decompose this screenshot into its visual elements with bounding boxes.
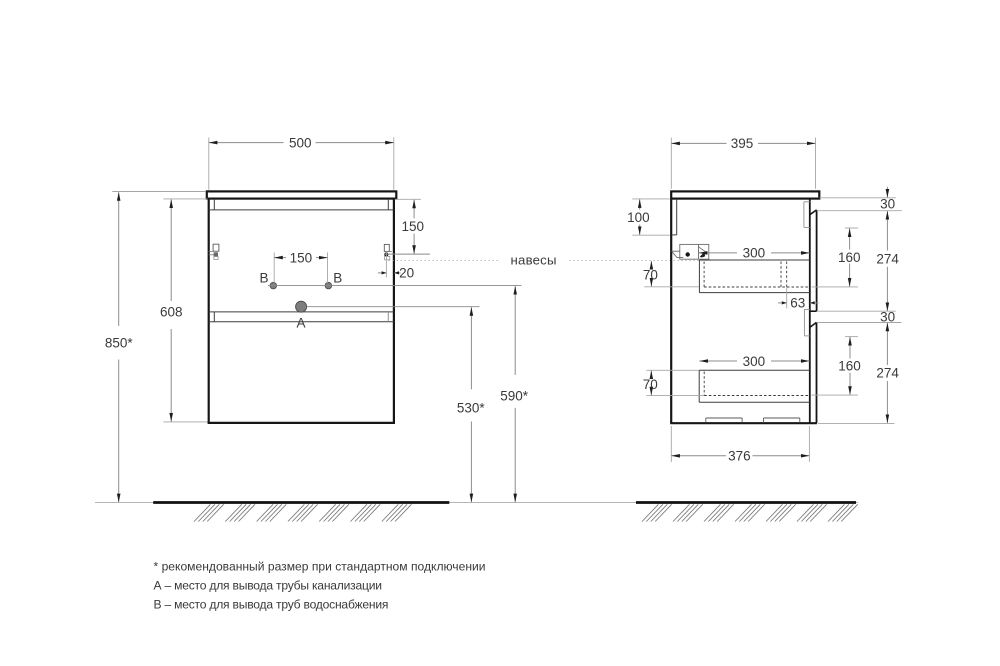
svg-text:160: 160 (838, 359, 861, 374)
svg-text:В – место для вывода труб водо: В – место для вывода труб водоснабжения (154, 597, 389, 611)
svg-text:530*: 530* (457, 400, 486, 415)
svg-text:150: 150 (402, 219, 425, 234)
svg-text:63: 63 (790, 296, 805, 311)
svg-text:100: 100 (627, 210, 650, 225)
svg-text:150: 150 (290, 250, 313, 265)
svg-text:А – место для вывода трубы кан: А – место для вывода трубы канализации (154, 578, 382, 592)
svg-text:70: 70 (643, 268, 658, 283)
svg-text:300: 300 (743, 354, 766, 369)
svg-text:* рекомендованный размер при с: * рекомендованный размер при стандартном… (154, 559, 486, 573)
svg-text:274: 274 (876, 252, 899, 267)
svg-text:395: 395 (731, 136, 754, 151)
svg-text:376: 376 (728, 449, 751, 464)
svg-text:500: 500 (289, 135, 312, 150)
svg-text:30: 30 (880, 196, 895, 211)
svg-text:70: 70 (643, 377, 658, 392)
svg-text:A: A (296, 316, 305, 331)
svg-text:B: B (333, 271, 342, 286)
svg-text:160: 160 (838, 250, 861, 265)
svg-text:30: 30 (880, 309, 895, 324)
svg-text:B: B (259, 271, 268, 286)
svg-text:850*: 850* (105, 335, 134, 350)
svg-text:590*: 590* (500, 389, 529, 404)
svg-text:608: 608 (160, 305, 183, 320)
svg-text:274: 274 (876, 366, 899, 381)
svg-text:20: 20 (399, 265, 414, 280)
svg-text:навесы: навесы (511, 252, 557, 267)
svg-text:300: 300 (743, 246, 766, 261)
